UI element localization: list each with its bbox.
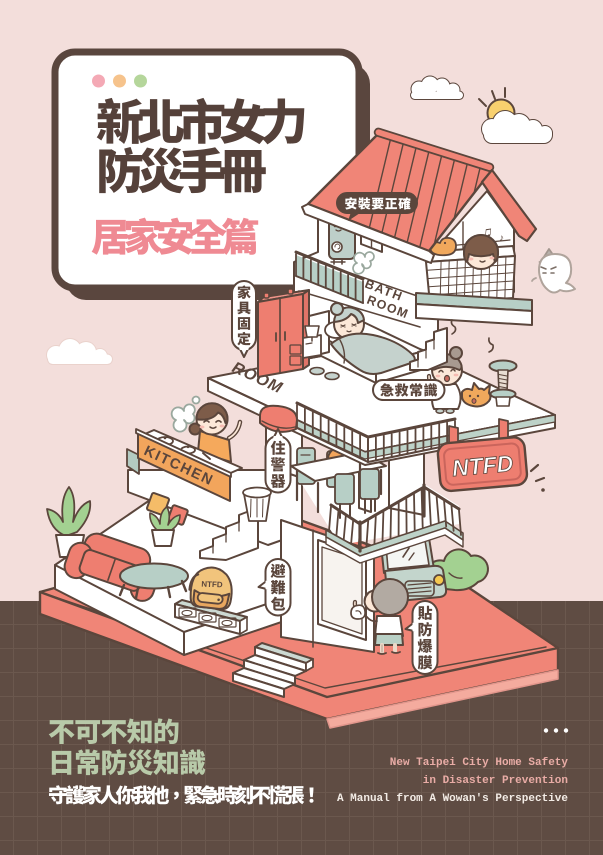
svg-text:NTFD: NTFD <box>201 580 223 590</box>
svg-text:New Taipei City Home Safety: New Taipei City Home Safety <box>390 757 569 769</box>
svg-text:♪: ♪ <box>499 233 504 244</box>
svg-text:A Manual from A Wowan's Perspe: A Manual from A Wowan's Perspective <box>337 793 568 805</box>
svg-text:in Disaster Prevention: in Disaster Prevention <box>423 775 568 787</box>
svg-text:NTFD: NTFD <box>451 450 514 481</box>
